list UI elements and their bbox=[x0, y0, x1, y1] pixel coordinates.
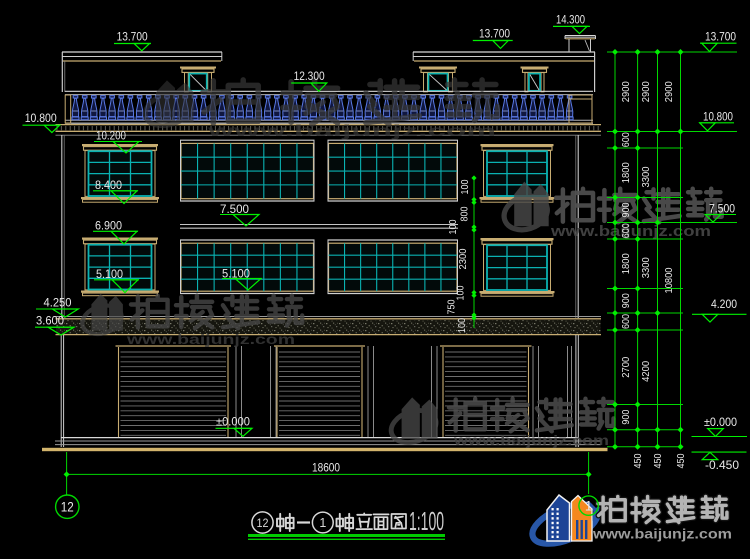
svg-text:4200: 4200 bbox=[640, 361, 652, 382]
svg-text:-0.450: -0.450 bbox=[705, 458, 739, 472]
svg-text:750: 750 bbox=[446, 299, 458, 314]
svg-text:18600: 18600 bbox=[312, 463, 340, 475]
svg-text:600: 600 bbox=[620, 223, 632, 238]
svg-text:1800: 1800 bbox=[620, 253, 632, 274]
svg-text:7.500: 7.500 bbox=[709, 202, 735, 216]
svg-text:12.300: 12.300 bbox=[294, 69, 325, 83]
svg-text:450: 450 bbox=[675, 453, 687, 468]
svg-text:6.900: 6.900 bbox=[95, 220, 122, 232]
svg-text:1: 1 bbox=[319, 516, 326, 530]
svg-text:600: 600 bbox=[620, 314, 632, 329]
svg-text:100: 100 bbox=[455, 285, 467, 300]
svg-text:13.700: 13.700 bbox=[117, 30, 148, 44]
svg-text:2900: 2900 bbox=[620, 81, 632, 102]
svg-text:±0.000: ±0.000 bbox=[216, 417, 250, 429]
svg-text:2900: 2900 bbox=[663, 81, 675, 102]
svg-text:1800: 1800 bbox=[620, 162, 632, 183]
svg-text:10.800: 10.800 bbox=[25, 111, 57, 125]
svg-text:450: 450 bbox=[652, 453, 664, 468]
svg-text:www.baijunjz.com: www.baijunjz.com bbox=[592, 526, 732, 542]
svg-text:900: 900 bbox=[620, 293, 632, 308]
svg-text:100: 100 bbox=[447, 219, 459, 234]
svg-text:3300: 3300 bbox=[640, 257, 652, 278]
svg-text:12: 12 bbox=[257, 516, 269, 530]
svg-text:www.baijunjz.com: www.baijunjz.com bbox=[206, 123, 496, 140]
svg-text:12: 12 bbox=[61, 500, 74, 515]
svg-text:10.800: 10.800 bbox=[703, 110, 733, 124]
svg-text:450: 450 bbox=[632, 453, 644, 468]
svg-text:800: 800 bbox=[459, 206, 471, 221]
svg-text:900: 900 bbox=[620, 410, 632, 425]
svg-text:900: 900 bbox=[620, 202, 632, 217]
svg-text:13.700: 13.700 bbox=[479, 27, 510, 41]
svg-text:www.baijunjz.com: www.baijunjz.com bbox=[453, 433, 609, 448]
svg-text:10.200: 10.200 bbox=[96, 131, 126, 143]
svg-text:5.100: 5.100 bbox=[96, 269, 123, 281]
svg-text:100: 100 bbox=[456, 318, 468, 333]
svg-text:14.300: 14.300 bbox=[556, 13, 585, 27]
svg-text:4.250: 4.250 bbox=[44, 298, 72, 310]
svg-text:www.baijunjz.com: www.baijunjz.com bbox=[126, 331, 295, 347]
svg-text:1:100: 1:100 bbox=[409, 506, 444, 536]
svg-text:±0.000: ±0.000 bbox=[704, 415, 737, 429]
svg-text:600: 600 bbox=[620, 132, 632, 147]
svg-text:1: 1 bbox=[585, 499, 593, 514]
svg-text:2300: 2300 bbox=[457, 248, 469, 269]
svg-text:10800: 10800 bbox=[663, 267, 675, 293]
svg-text:4.200: 4.200 bbox=[711, 297, 737, 311]
svg-text:2700: 2700 bbox=[620, 357, 632, 378]
svg-text:100: 100 bbox=[459, 179, 471, 194]
svg-text:2900: 2900 bbox=[640, 81, 652, 102]
svg-text:13.700: 13.700 bbox=[705, 30, 736, 44]
svg-text:3300: 3300 bbox=[640, 166, 652, 187]
svg-text:3.600: 3.600 bbox=[36, 316, 64, 328]
svg-text:8.400: 8.400 bbox=[95, 180, 122, 192]
